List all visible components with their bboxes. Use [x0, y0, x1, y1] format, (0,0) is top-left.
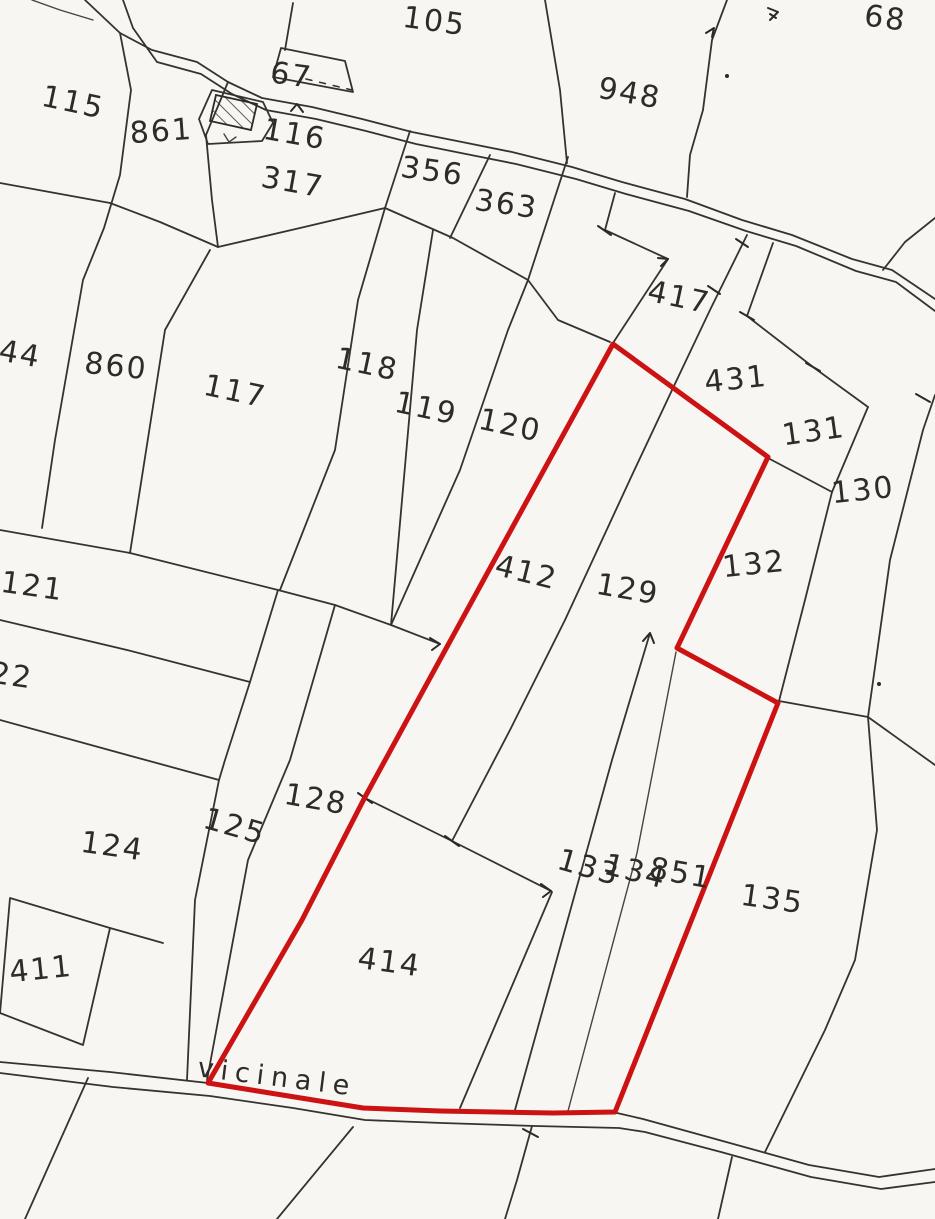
parcel-label-431: 431	[703, 359, 770, 400]
parcel-label-121: 121	[0, 565, 66, 608]
parcel-label-144: 144	[0, 330, 44, 375]
parcel-label-861: 861	[129, 112, 195, 151]
parcel-label-122: 122	[0, 653, 35, 696]
parcel-label-128: 128	[281, 777, 349, 822]
parcel-label-118: 118	[332, 341, 401, 388]
road-branch-right-edge	[883, 218, 935, 270]
top-road	[32, 0, 935, 311]
cadastral-map-scan: 1056811586167116317356363948417431131130…	[0, 0, 935, 1219]
parcel-label-363: 363	[473, 183, 541, 226]
parcel-label-117: 117	[200, 368, 269, 415]
parcel-label-130: 130	[830, 470, 897, 511]
top-road-side-line	[32, 0, 93, 20]
parcel-label-948: 948	[595, 71, 663, 116]
parcel-label-125: 125	[199, 801, 269, 852]
parcel-label-105: 105	[401, 0, 469, 43]
parcel-label-120: 120	[475, 402, 544, 449]
parcel-label-414: 414	[356, 941, 424, 984]
parcel-label-132: 132	[721, 544, 788, 585]
parcel-label-115: 115	[38, 79, 107, 126]
top-road-upper-edge	[85, 0, 935, 299]
parcel-label-860: 860	[83, 346, 150, 387]
bottom-road-upper-edge	[0, 1062, 935, 1177]
parcel-label-317: 317	[258, 160, 326, 205]
parcel-label-67: 67	[268, 55, 315, 96]
map-canvas: 1056811586167116317356363948417431131130…	[0, 0, 935, 1219]
highlighted-parcel-outline	[208, 344, 778, 1113]
parcel-label-131: 131	[780, 410, 848, 453]
parcel-label-129: 129	[593, 567, 661, 612]
bottom-road	[0, 1062, 935, 1189]
parcel-label-411: 411	[8, 949, 75, 990]
building-tail-mark	[224, 134, 236, 142]
parcel-label-356: 356	[399, 150, 467, 193]
parcel-label-417: 417	[644, 274, 713, 321]
parcel-label-135: 135	[739, 878, 807, 921]
parcel-label-124: 124	[79, 825, 147, 868]
hatched-building-icon	[210, 95, 257, 130]
parcel-label-412: 412	[491, 548, 561, 597]
parcel-label-119: 119	[391, 385, 460, 432]
parcel-label-68: 68	[862, 0, 909, 39]
